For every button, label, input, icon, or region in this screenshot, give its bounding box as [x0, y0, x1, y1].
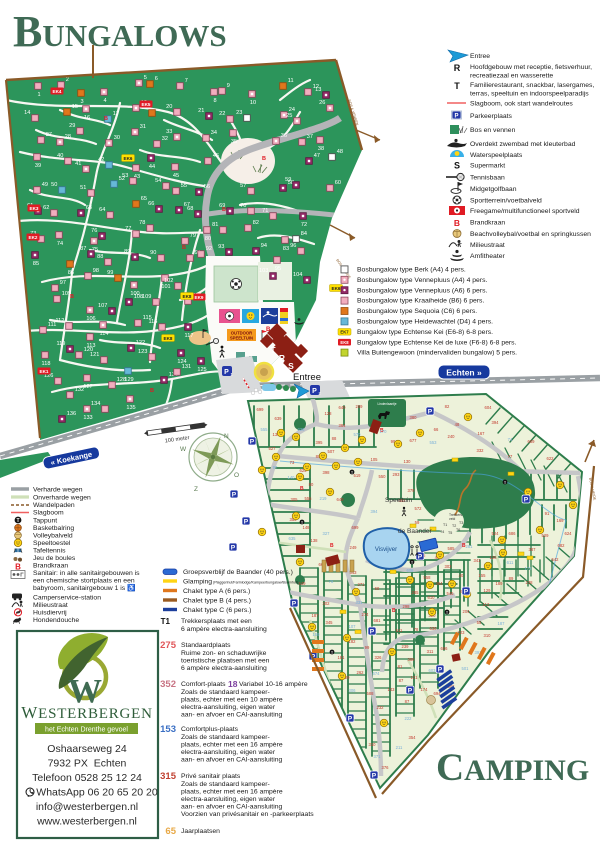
svg-text:69: 69	[375, 586, 380, 591]
svg-text:Oshaarseweg 24: Oshaarseweg 24	[47, 743, 127, 755]
svg-text:76: 76	[91, 228, 97, 234]
svg-text:572: 572	[415, 506, 423, 511]
svg-text:Hoofdgebouw met receptie, fiet: Hoofdgebouw met receptie, fietsverhuur,	[470, 64, 592, 71]
svg-text:een chemische stortplaats en e: een chemische stortplaats en een	[33, 578, 135, 585]
svg-text:Hondendouche: Hondendouche	[33, 617, 79, 624]
svg-text:249: 249	[350, 545, 358, 550]
svg-text:20: 20	[166, 104, 172, 110]
svg-text:74: 74	[57, 241, 63, 247]
svg-text:394: 394	[371, 509, 379, 514]
svg-text:121: 121	[90, 352, 99, 358]
svg-text:55: 55	[181, 183, 187, 189]
svg-text:T4: T4	[440, 530, 444, 534]
svg-text:Familierestaurant, snackbar, l: Familierestaurant, snackbar, lasergames,	[470, 82, 594, 89]
svg-text:129: 129	[484, 588, 492, 593]
svg-text:40: 40	[459, 573, 464, 578]
svg-text:519: 519	[354, 473, 362, 478]
svg-text:82: 82	[445, 404, 450, 409]
svg-text:649: 649	[337, 497, 345, 502]
svg-text:42: 42	[98, 157, 104, 163]
svg-text:136: 136	[67, 411, 76, 417]
svg-text:EK4: EK4	[53, 89, 62, 94]
svg-text:524: 524	[492, 531, 500, 536]
svg-text:36: 36	[281, 133, 287, 139]
svg-text:138: 138	[311, 538, 319, 543]
svg-text:O: O	[234, 472, 239, 479]
svg-text:240: 240	[448, 434, 456, 439]
svg-text:aan- en afvoer en CAI-aansluit: aan- en afvoer en CAI-aansluiting	[181, 757, 282, 764]
svg-text:41: 41	[75, 161, 81, 167]
svg-text:Brandkraan: Brandkraan	[33, 563, 68, 570]
svg-text:604: 604	[485, 405, 493, 410]
svg-text:112: 112	[55, 318, 64, 324]
svg-text:EK6: EK6	[332, 286, 341, 291]
svg-text:80: 80	[205, 236, 211, 242]
svg-text:46: 46	[213, 153, 219, 159]
svg-text:EK8: EK8	[183, 294, 192, 299]
svg-text:40: 40	[57, 153, 63, 159]
svg-text:P: P	[372, 773, 377, 780]
svg-text:plaats, echter met een 16 ampè: plaats, echter met een 16 ampère	[181, 742, 283, 749]
svg-text:B: B	[300, 486, 304, 492]
svg-text:toeristische plaatsen met een: toeristische plaatsen met een	[181, 658, 270, 665]
svg-text:T1: T1	[161, 617, 171, 626]
svg-text:35: 35	[231, 139, 237, 145]
svg-text:354: 354	[409, 735, 417, 740]
svg-text:384: 384	[339, 423, 347, 428]
svg-text:389: 389	[408, 657, 416, 662]
svg-text:119: 119	[56, 341, 65, 347]
svg-text:281: 281	[466, 544, 474, 549]
svg-text:699: 699	[257, 407, 265, 412]
svg-text:de Baander: de Baander	[398, 528, 432, 535]
svg-text:48: 48	[455, 422, 460, 427]
svg-text:Variabel 10-16 ampère: Variabel 10-16 ampère	[239, 681, 308, 688]
svg-text:610: 610	[428, 595, 436, 600]
svg-text:EK8: EK8	[164, 336, 173, 341]
svg-text:97: 97	[60, 280, 66, 286]
svg-text:T: T	[270, 345, 276, 355]
svg-text:96: 96	[290, 243, 296, 249]
svg-text:159: 159	[313, 632, 321, 637]
svg-text:88: 88	[332, 436, 337, 441]
svg-text:689: 689	[528, 439, 536, 444]
svg-text:298: 298	[403, 604, 411, 609]
svg-text:310: 310	[484, 633, 492, 638]
svg-text:3: 3	[80, 99, 83, 105]
svg-text:Supermarkt: Supermarkt	[470, 163, 505, 170]
svg-text:Bosbungalow type Vennepluus (A: Bosbungalow type Vennepluus (A6) 6 pers.	[357, 287, 487, 294]
svg-text:Tappunt: Tappunt	[33, 518, 57, 525]
svg-text:Privé sanitair plaats: Privé sanitair plaats	[181, 773, 241, 780]
svg-text:WhatsApp 06 20 65 20 20: WhatsApp 06 20 65 20 20	[36, 787, 158, 799]
svg-text:269: 269	[356, 404, 364, 409]
svg-text:87: 87	[80, 246, 86, 252]
svg-text:132: 132	[75, 387, 84, 393]
svg-text:Milieustraat: Milieustraat	[33, 602, 68, 609]
svg-text:89: 89	[124, 249, 130, 255]
svg-text:P: P	[464, 589, 469, 596]
svg-text:Huisdiervrij: Huisdiervrij	[33, 610, 67, 617]
svg-text:83: 83	[283, 246, 289, 252]
svg-text:R: R	[454, 63, 461, 73]
svg-text:65: 65	[141, 196, 147, 202]
svg-text:94: 94	[261, 243, 267, 249]
svg-text:57: 57	[240, 183, 246, 189]
svg-text:155: 155	[479, 573, 487, 578]
svg-text:13: 13	[315, 87, 321, 93]
svg-text:Entree: Entree	[470, 53, 490, 60]
svg-text:Speeltoestel: Speeltoestel	[33, 540, 71, 547]
svg-text:169: 169	[557, 518, 565, 523]
svg-text:219: 219	[320, 496, 328, 501]
svg-text:4: 4	[103, 98, 106, 104]
svg-text:Comfort-plaats: Comfort-plaats	[181, 681, 226, 688]
svg-text:54: 54	[155, 178, 161, 184]
svg-text:B: B	[70, 294, 74, 300]
svg-text:P: P	[428, 409, 433, 416]
svg-text:het Echten Drenthe gevoel: het Echten Drenthe gevoel	[45, 727, 128, 734]
svg-text:131: 131	[182, 364, 191, 370]
svg-text:Zoals de standaard kampeer-: Zoals de standaard kampeer-	[181, 734, 270, 741]
svg-text:63: 63	[86, 205, 92, 211]
svg-text:B: B	[392, 608, 396, 614]
svg-text:89: 89	[509, 576, 514, 581]
svg-text:103: 103	[259, 268, 268, 274]
svg-text:73: 73	[290, 460, 295, 465]
svg-text:Glamping: Glamping	[183, 579, 212, 586]
svg-text:50: 50	[51, 182, 57, 188]
svg-text:EK3: EK3	[30, 206, 39, 211]
svg-text:303: 303	[445, 564, 453, 569]
svg-text:T: T	[16, 518, 19, 524]
svg-text:Ruime zon- en schaduwrijke: Ruime zon- en schaduwrijke	[181, 650, 267, 657]
svg-text:Tennisbaan: Tennisbaan	[470, 175, 505, 182]
svg-text:77: 77	[125, 226, 131, 232]
svg-text:87: 87	[399, 678, 404, 683]
svg-text:126: 126	[490, 555, 498, 560]
svg-text:555: 555	[261, 427, 269, 432]
svg-text:45: 45	[173, 173, 179, 179]
svg-text:101: 101	[411, 675, 419, 680]
svg-text:98: 98	[93, 268, 99, 274]
svg-text:P: P	[454, 114, 458, 120]
svg-text:387: 387	[529, 547, 537, 552]
svg-text:Basketbalring: Basketbalring	[33, 525, 74, 532]
svg-text:SPEELTUIN: SPEELTUIN	[230, 336, 253, 341]
svg-text:plaats, echter met een 10 ampè: plaats, echter met een 10 ampère	[181, 697, 283, 704]
svg-text:527: 527	[269, 446, 277, 451]
svg-text:549: 549	[299, 581, 307, 586]
svg-text:48: 48	[337, 149, 343, 155]
svg-text:6 ampère electra-aansluiting: 6 ampère electra-aansluiting	[181, 626, 267, 633]
svg-text:635: 635	[289, 536, 297, 541]
svg-text:Z: Z	[194, 486, 198, 493]
svg-text:181: 181	[338, 655, 346, 660]
svg-text:babyroom, sanitairgebouw 1 is: babyroom, sanitairgebouw 1 is ♿	[33, 583, 136, 592]
svg-text:122: 122	[136, 340, 145, 346]
svg-text:S: S	[454, 161, 460, 171]
svg-text:Bosbungalow type Heidewachtel: Bosbungalow type Heidewachtel (D4) 4 per…	[357, 319, 493, 326]
svg-text:271: 271	[358, 582, 366, 587]
svg-text:15: 15	[72, 104, 78, 110]
svg-text:87: 87	[405, 699, 410, 704]
svg-text:696: 696	[441, 646, 449, 651]
svg-text:68: 68	[187, 206, 193, 212]
svg-text:84: 84	[301, 231, 307, 237]
svg-text:7932 PX Echten: 7932 PX Echten	[48, 758, 127, 770]
svg-text:608: 608	[407, 568, 415, 573]
svg-text:T6: T6	[456, 528, 460, 532]
svg-text:R: R	[279, 353, 285, 363]
svg-text:Volleybalveld: Volleybalveld	[33, 533, 73, 540]
svg-text:23: 23	[236, 110, 242, 116]
svg-text:Voorzien van privésanitair en: Voorzien van privésanitair en -parkeerpl…	[181, 811, 314, 818]
svg-text:187: 187	[312, 613, 320, 618]
svg-text:331: 331	[356, 600, 364, 605]
svg-text:49: 49	[42, 182, 48, 188]
svg-text:104: 104	[293, 272, 302, 278]
svg-text:232: 232	[377, 705, 385, 710]
svg-text:130: 130	[404, 459, 412, 464]
svg-text:239: 239	[402, 644, 410, 649]
svg-text:677: 677	[410, 438, 418, 443]
svg-text:86: 86	[68, 270, 74, 276]
svg-text:106: 106	[86, 316, 95, 322]
svg-text:682: 682	[558, 543, 566, 548]
svg-text:102: 102	[164, 278, 173, 284]
svg-text:116: 116	[148, 319, 157, 325]
svg-text:274: 274	[362, 612, 370, 617]
svg-text:Freegame/multifunctioneel spor: Freegame/multifunctioneel sportveld	[470, 208, 580, 215]
svg-text:681: 681	[374, 618, 382, 623]
svg-text:65: 65	[165, 826, 176, 837]
svg-text:Parkeerplaats: Parkeerplaats	[470, 113, 513, 120]
svg-text:129: 129	[124, 377, 133, 383]
svg-text:379: 379	[408, 488, 416, 493]
svg-text:81: 81	[398, 664, 403, 669]
svg-text:T3: T3	[459, 521, 463, 525]
svg-text:Lindenlaantje: Lindenlaantje	[378, 402, 397, 406]
svg-text:6: 6	[155, 76, 158, 82]
svg-text:T: T	[454, 81, 460, 91]
svg-text:66: 66	[148, 201, 154, 207]
svg-text:www.westerbergen.nl: www.westerbergen.nl	[36, 816, 137, 828]
svg-text:47: 47	[314, 153, 320, 159]
svg-text:33: 33	[166, 129, 172, 135]
svg-text:204: 204	[463, 609, 471, 614]
svg-text:611: 611	[507, 560, 514, 565]
svg-text:558: 558	[424, 575, 432, 580]
svg-text:117: 117	[185, 333, 194, 339]
svg-text:326: 326	[375, 655, 383, 660]
svg-text:Sanitair: in alle sanitairgebo: Sanitair: in alle sanitairgebouwen is	[33, 570, 140, 577]
svg-text:P: P	[231, 545, 236, 552]
svg-text:118: 118	[42, 361, 51, 367]
svg-text:71: 71	[262, 208, 268, 214]
svg-text:56: 56	[204, 184, 210, 190]
svg-text:511: 511	[396, 628, 403, 633]
svg-text:622: 622	[547, 456, 555, 461]
svg-text:226: 226	[298, 427, 306, 432]
svg-text:341: 341	[474, 558, 482, 563]
svg-text:16: 16	[84, 115, 90, 121]
svg-text:P: P	[418, 554, 423, 561]
svg-text:Telefoon 0528 25 12 24: Telefoon 0528 25 12 24	[32, 772, 142, 784]
svg-text:30: 30	[114, 135, 120, 141]
svg-text:Camperservice-station: Camperservice-station	[33, 595, 101, 602]
svg-text:128: 128	[325, 411, 333, 416]
svg-text:170: 170	[380, 429, 388, 434]
svg-text:N: N	[224, 433, 229, 440]
svg-text:345: 345	[326, 620, 334, 625]
svg-text:107: 107	[349, 624, 357, 629]
svg-text:(Plaggenhut/Farmlodge/Kampeerb: (Plaggenhut/Farmlodge/Kampeerbungalow/Bo…	[213, 581, 298, 585]
svg-text:29: 29	[69, 123, 75, 129]
svg-text:28: 28	[65, 134, 71, 140]
svg-text:78: 78	[329, 579, 334, 584]
svg-text:Echten »: Echten »	[446, 368, 482, 378]
svg-text:Waterspeelplaats: Waterspeelplaats	[470, 152, 523, 159]
svg-text:W: W	[180, 446, 187, 453]
svg-text:143: 143	[388, 687, 396, 692]
svg-text:112: 112	[483, 602, 490, 607]
svg-text:P: P	[348, 716, 353, 723]
svg-text:167: 167	[478, 431, 486, 436]
svg-text:P: P	[232, 492, 237, 499]
svg-text:T1: T1	[443, 523, 447, 527]
svg-text:W: W	[68, 673, 102, 710]
svg-text:17: 17	[113, 111, 119, 117]
svg-text:39: 39	[35, 163, 41, 169]
svg-text:Standaardplaats: Standaardplaats	[181, 642, 231, 649]
svg-text:Visvijver: Visvijver	[375, 547, 397, 553]
svg-text:2: 2	[66, 77, 69, 83]
svg-text:371: 371	[374, 754, 382, 759]
svg-text:9: 9	[227, 83, 230, 89]
svg-text:639: 639	[275, 416, 283, 421]
svg-text:553: 553	[430, 440, 438, 445]
svg-text:262: 262	[357, 670, 365, 675]
svg-text:99: 99	[365, 645, 370, 650]
svg-text:Bungalow type Echtense Kei (E6: Bungalow type Echtense Kei (E6-8) 6-8 pe…	[357, 329, 493, 336]
svg-text:109: 109	[142, 294, 151, 300]
svg-text:80: 80	[309, 482, 314, 487]
svg-text:293: 293	[393, 472, 401, 477]
svg-text:95: 95	[275, 266, 281, 272]
svg-text:674: 674	[373, 671, 381, 676]
svg-text:72: 72	[301, 222, 307, 228]
svg-text:91: 91	[545, 511, 550, 516]
svg-text:Overdekt zwembad met kleuterba: Overdekt zwembad met kleuterbad	[470, 141, 576, 148]
svg-text:aan- en afvoer en CAI-aansluit: aan- en afvoer en CAI-aansluiting	[181, 712, 282, 719]
svg-text:10: 10	[250, 100, 256, 106]
svg-text:Bosbungalow type Vennepluus (A: Bosbungalow type Vennepluus (A4) 4 pers.	[357, 277, 487, 284]
svg-text:P: P	[438, 667, 443, 674]
svg-text:64: 64	[99, 207, 105, 213]
svg-text:686: 686	[509, 531, 517, 536]
svg-text:699: 699	[352, 525, 360, 530]
svg-text:133: 133	[83, 415, 92, 421]
svg-text:7: 7	[185, 78, 188, 84]
svg-text:Sportterrein/voetbalveld: Sportterrein/voetbalveld	[470, 198, 542, 205]
svg-text:Wandelpaden: Wandelpaden	[33, 502, 75, 509]
svg-text:44: 44	[149, 164, 155, 170]
svg-text:570: 570	[354, 432, 362, 437]
svg-text:78: 78	[139, 220, 145, 226]
svg-text:585: 585	[448, 546, 456, 551]
svg-text:27: 27	[46, 132, 52, 138]
svg-text:21: 21	[198, 108, 204, 114]
svg-text:88: 88	[97, 254, 103, 260]
svg-text:34: 34	[211, 130, 217, 136]
svg-text:Bosbungalow type Kraaiheide (B: Bosbungalow type Kraaiheide (B6) 6 pers.	[357, 298, 484, 305]
svg-text:77: 77	[508, 454, 513, 459]
svg-text:P: P	[524, 497, 529, 504]
svg-text:Bosbungalow type Sequoia (C6): Bosbungalow type Sequoia (C6) 6 pers.	[357, 308, 477, 315]
svg-text:B: B	[222, 207, 226, 213]
svg-text:97: 97	[273, 465, 278, 470]
svg-text:EK7: EK7	[340, 330, 349, 335]
svg-text:22: 22	[219, 111, 225, 117]
svg-text:Chalet type B (4 pers.): Chalet type B (4 pers.)	[183, 598, 251, 605]
svg-text:332: 332	[477, 448, 485, 453]
svg-text:93: 93	[218, 244, 224, 250]
svg-text:T5: T5	[448, 531, 452, 535]
svg-text:70: 70	[240, 203, 246, 209]
svg-text:32: 32	[162, 136, 168, 142]
svg-text:Jeu de boules: Jeu de boules	[33, 555, 76, 562]
svg-text:8: 8	[213, 98, 216, 104]
svg-text:Tafeltennis: Tafeltennis	[33, 548, 66, 555]
svg-text:14: 14	[24, 110, 30, 116]
svg-text:P: P	[244, 519, 249, 526]
svg-text:terras, speeltuin en indoorspe: terras, speeltuin en indoorspeelparadijs	[470, 91, 589, 98]
svg-text:P: P	[292, 601, 297, 608]
svg-text:636: 636	[430, 626, 438, 631]
svg-text:74: 74	[508, 437, 513, 442]
svg-text:364: 364	[436, 581, 444, 586]
svg-text:EK9: EK9	[195, 295, 204, 300]
svg-text:81: 81	[212, 222, 218, 228]
svg-text:B: B	[454, 218, 460, 228]
svg-text:101: 101	[161, 284, 170, 290]
svg-text:135: 135	[126, 405, 135, 411]
svg-text:125: 125	[197, 367, 206, 373]
svg-text:107: 107	[98, 303, 107, 309]
svg-text:EK5: EK5	[142, 102, 151, 107]
svg-text:Bosbungalow type Berk (A4) 4 p: Bosbungalow type Berk (A4) 4 pers.	[357, 267, 466, 274]
svg-text:123: 123	[138, 349, 147, 355]
svg-text:59: 59	[285, 177, 291, 183]
svg-text:85: 85	[33, 261, 39, 267]
svg-text:Chalet type C (6 pers.): Chalet type C (6 pers.)	[183, 607, 251, 614]
svg-text:380: 380	[410, 415, 418, 420]
svg-text:recreatiezaal en wasserette: recreatiezaal en wasserette	[470, 73, 553, 80]
svg-text:veld: veld	[449, 517, 455, 521]
svg-text:173: 173	[525, 566, 533, 571]
svg-text:electra-aansluiting, eigen wat: electra-aansluiting, eigen water	[181, 796, 276, 803]
svg-text:B: B	[330, 543, 334, 549]
svg-text:Jaarplaatsen: Jaarplaatsen	[181, 828, 220, 835]
svg-text:26: 26	[319, 100, 325, 106]
svg-text:134: 134	[91, 401, 100, 407]
svg-text:82: 82	[253, 220, 259, 226]
svg-text:31: 31	[140, 124, 146, 130]
svg-text:327: 327	[323, 531, 331, 536]
svg-text:Milieustraat: Milieustraat	[470, 242, 505, 249]
svg-text:18: 18	[228, 679, 238, 689]
